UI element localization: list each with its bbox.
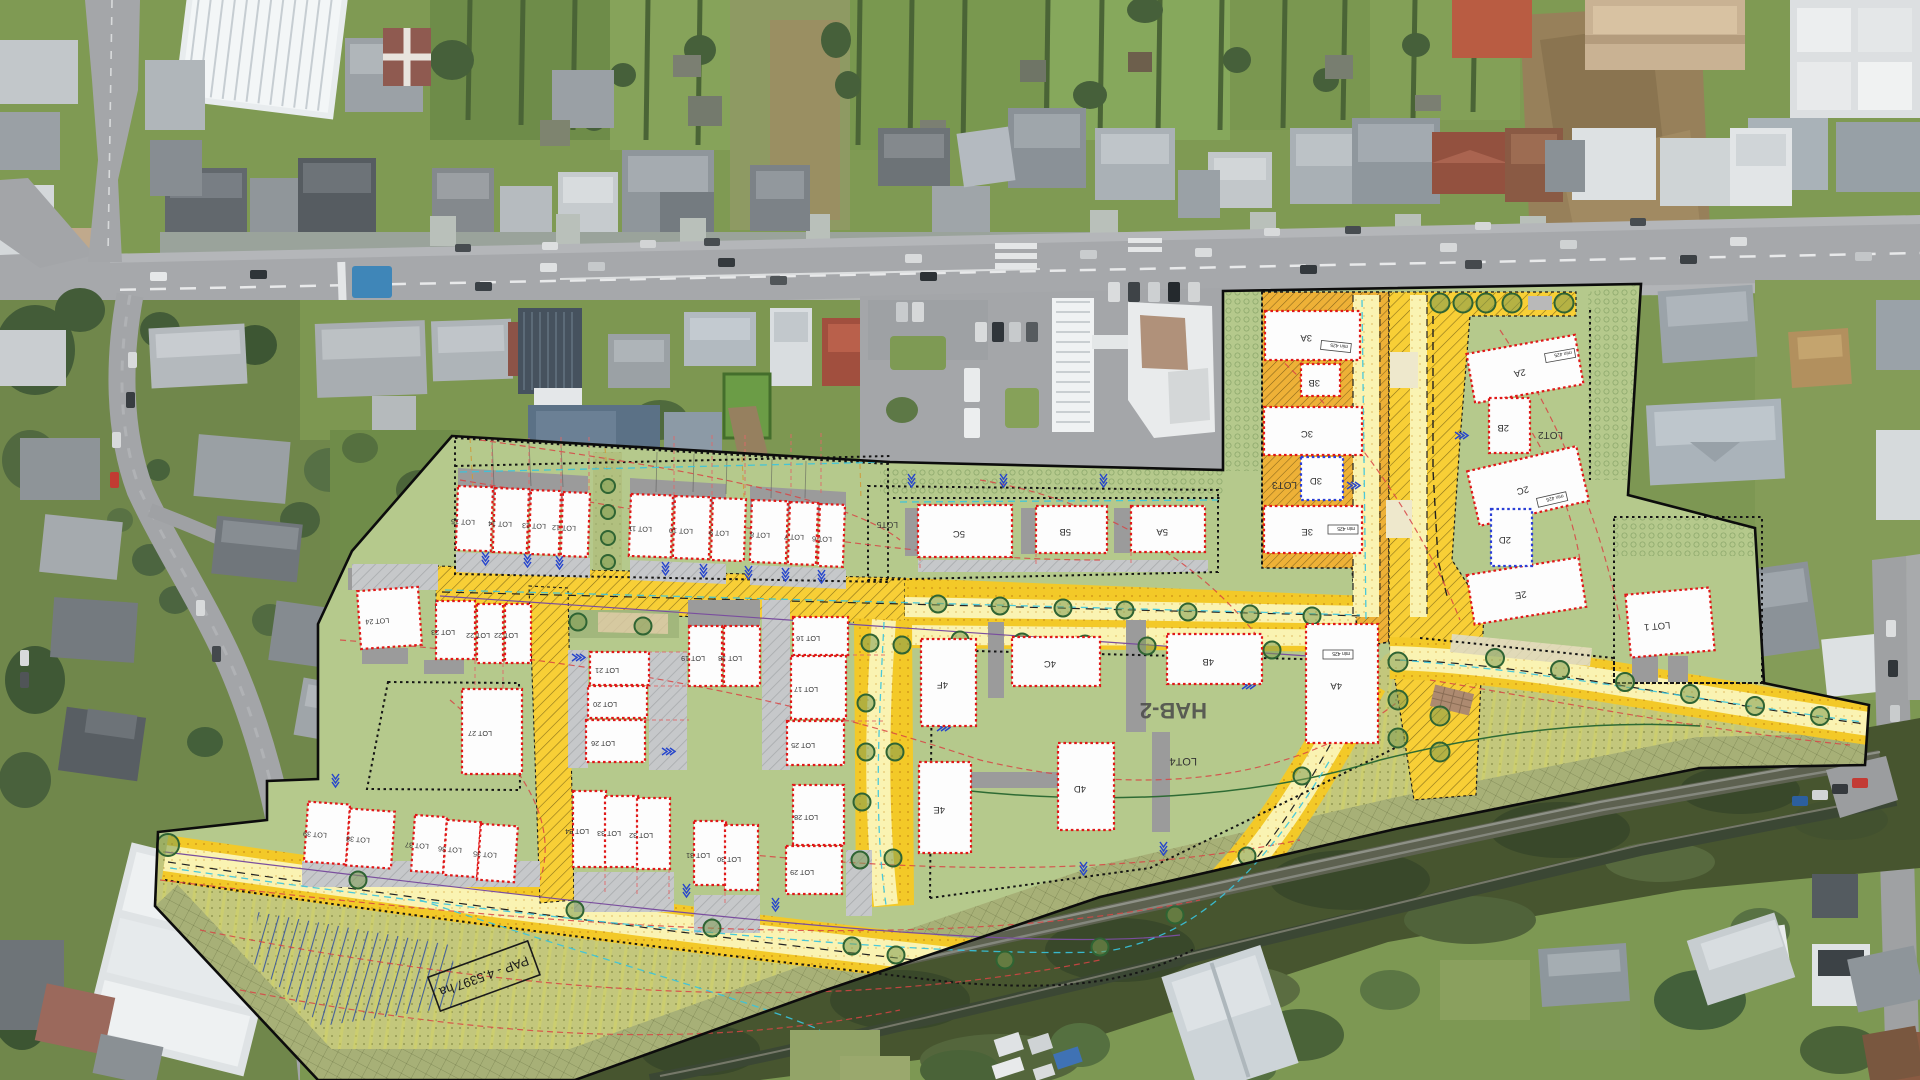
svg-text:LOT 36: LOT 36 bbox=[438, 844, 462, 855]
svg-text:LOT 28: LOT 28 bbox=[794, 813, 818, 822]
svg-text:5C: 5C bbox=[953, 528, 965, 539]
svg-text:2E: 2E bbox=[1514, 588, 1527, 601]
svg-text:LOT 26: LOT 26 bbox=[591, 739, 615, 748]
svg-text:LOT 9: LOT 9 bbox=[709, 528, 729, 538]
svg-text:LOT 34: LOT 34 bbox=[565, 827, 589, 836]
svg-text:LOT 12: LOT 12 bbox=[552, 523, 576, 533]
svg-text:2D: 2D bbox=[1499, 534, 1511, 545]
svg-text:LOT 7: LOT 7 bbox=[784, 532, 804, 542]
svg-text:4F: 4F bbox=[937, 679, 948, 690]
svg-text:LOT 32: LOT 32 bbox=[629, 831, 653, 840]
svg-text:min 425: min 425 bbox=[1332, 650, 1350, 656]
svg-text:LOT 8: LOT 8 bbox=[750, 530, 770, 540]
svg-text:LOT 1: LOT 1 bbox=[1644, 619, 1671, 632]
svg-text:min 425: min 425 bbox=[1337, 525, 1355, 531]
svg-text:LOT 16: LOT 16 bbox=[796, 634, 820, 643]
svg-text:LOT5: LOT5 bbox=[876, 520, 898, 530]
svg-text:LOT 38: LOT 38 bbox=[346, 834, 370, 845]
svg-text:3A: 3A bbox=[1300, 332, 1312, 343]
svg-text:LOT 33: LOT 33 bbox=[597, 829, 621, 838]
svg-text:LOT 37: LOT 37 bbox=[405, 840, 429, 851]
svg-text:LOT3: LOT3 bbox=[1272, 479, 1297, 490]
svg-text:3E: 3E bbox=[1301, 526, 1313, 537]
svg-text:LOT 10: LOT 10 bbox=[669, 526, 693, 536]
svg-text:LOT 6: LOT 6 bbox=[812, 534, 832, 544]
svg-text:LOT 39: LOT 39 bbox=[303, 829, 327, 840]
svg-text:3B: 3B bbox=[1308, 377, 1320, 388]
svg-text:4B: 4B bbox=[1202, 656, 1214, 667]
svg-text:4E: 4E bbox=[933, 804, 945, 815]
svg-text:LOT 13: LOT 13 bbox=[522, 521, 546, 531]
svg-text:LOT 22: LOT 22 bbox=[466, 631, 490, 640]
svg-text:3C: 3C bbox=[1301, 428, 1313, 439]
svg-text:LOT 20: LOT 20 bbox=[593, 700, 617, 709]
svg-text:4A: 4A bbox=[1330, 680, 1342, 691]
svg-text:LOT 11: LOT 11 bbox=[628, 524, 652, 534]
svg-text:LOT 25: LOT 25 bbox=[791, 741, 815, 750]
svg-text:LOT 15: LOT 15 bbox=[451, 517, 475, 527]
svg-text:LOT 22: LOT 22 bbox=[494, 631, 518, 640]
svg-text:LOT 29: LOT 29 bbox=[790, 868, 814, 877]
svg-text:LOT 31: LOT 31 bbox=[686, 851, 710, 860]
svg-text:4D: 4D bbox=[1074, 783, 1086, 794]
svg-text:LOT2: LOT2 bbox=[1538, 429, 1563, 440]
svg-text:LOT 30: LOT 30 bbox=[717, 855, 741, 864]
svg-text:LOT 14: LOT 14 bbox=[488, 519, 512, 529]
svg-text:LOT 17: LOT 17 bbox=[794, 685, 818, 694]
svg-text:LOT 19: LOT 19 bbox=[681, 654, 705, 663]
svg-text:LOT 35: LOT 35 bbox=[473, 849, 497, 860]
svg-text:LOT 27: LOT 27 bbox=[468, 729, 492, 738]
svg-text:LOT 23: LOT 23 bbox=[431, 628, 455, 637]
svg-text:4C: 4C bbox=[1044, 658, 1056, 669]
svg-text:LOT 21: LOT 21 bbox=[595, 666, 619, 675]
svg-text:LOT4: LOT4 bbox=[1169, 755, 1197, 767]
svg-text:5B: 5B bbox=[1059, 526, 1071, 537]
svg-text:LOT 24: LOT 24 bbox=[365, 616, 389, 627]
svg-text:3D: 3D bbox=[1310, 475, 1322, 486]
svg-text:HAB-2: HAB-2 bbox=[1140, 698, 1207, 723]
svg-text:5A: 5A bbox=[1156, 526, 1168, 537]
svg-text:LOT 18: LOT 18 bbox=[718, 654, 742, 663]
svg-text:2B: 2B bbox=[1497, 422, 1509, 433]
